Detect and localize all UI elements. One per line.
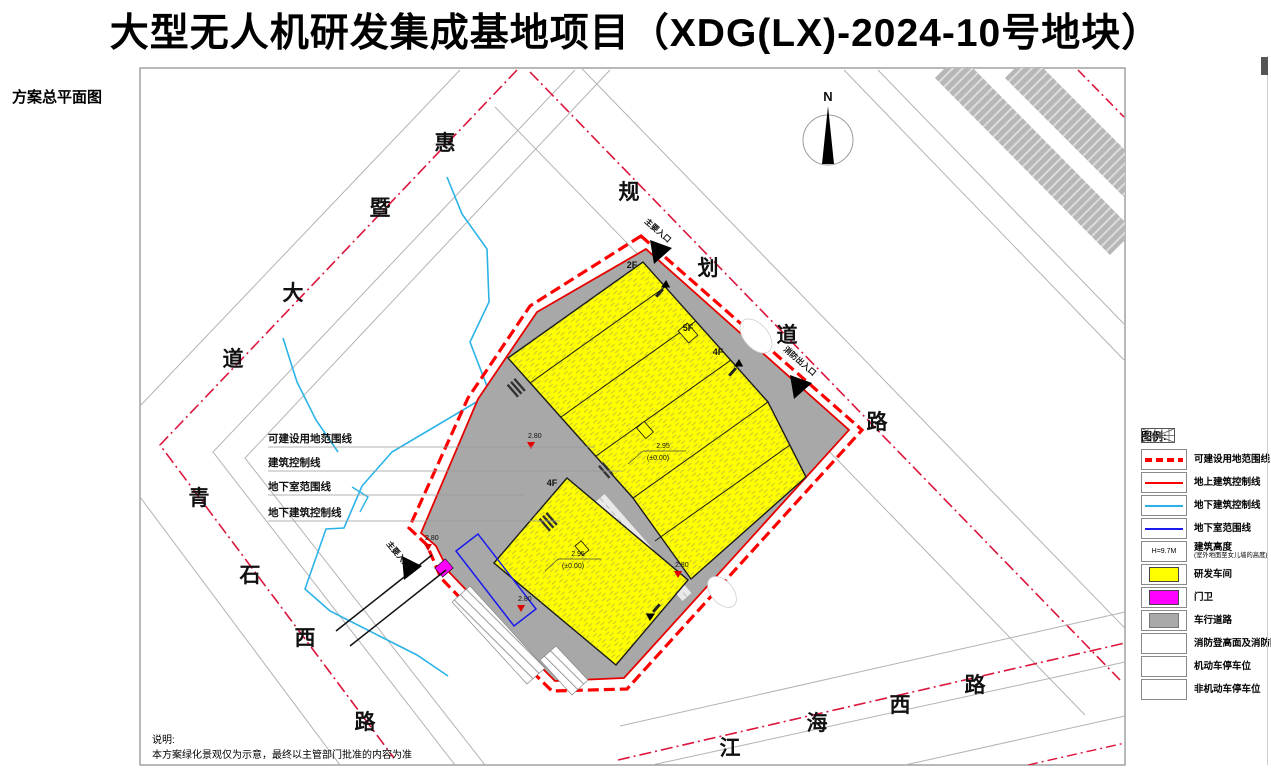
note-body: 本方案绿化景观仅为示意，最终以主管部门批准的内容为准: [152, 746, 412, 761]
svg-text:划: 划: [698, 257, 719, 280]
yellow-fill-symbol: [1149, 567, 1179, 582]
legend-item-buildable-boundary: 可建设用地范围线: [1141, 450, 1266, 469]
svg-text:江: 江: [720, 737, 741, 760]
svg-text:可建设用地范围线: 可建设用地范围线: [268, 432, 352, 445]
svg-text:惠: 惠: [435, 132, 456, 155]
svg-text:地下建筑控制线: 地下建筑控制线: [268, 506, 342, 519]
legend-item-vehicle-road: 车行道路: [1141, 611, 1266, 630]
svg-text:道: 道: [777, 323, 798, 347]
svg-text:2.80: 2.80: [518, 596, 532, 603]
gray-fill-symbol: [1149, 613, 1179, 628]
svg-text:青: 青: [189, 487, 210, 510]
svg-text:(±0.00): (±0.00): [647, 455, 669, 462]
blue-line-symbol: [1145, 528, 1183, 530]
red-dash-line-symbol: [1145, 458, 1183, 462]
site-plan-drawing: 惠 暨 大 道 规 划 道 路 青 石 西 路 江 海 西 路 可建设用地范围线…: [0, 0, 1271, 771]
svg-text:西: 西: [295, 627, 316, 650]
svg-text:5F: 5F: [683, 323, 694, 333]
page-edge-line: [1267, 56, 1268, 765]
svg-text:2.95: 2.95: [656, 443, 670, 450]
legend-item-building-height: H=9.7M 建筑高度 (室外地面至女儿墙的高度): [1141, 542, 1266, 561]
svg-text:2.80: 2.80: [675, 562, 689, 569]
cyan-line-symbol: [1145, 505, 1183, 507]
legend-item-fire-lane: 消防登高面及消防回车场: [1141, 634, 1266, 653]
svg-text:路: 路: [867, 410, 889, 434]
red-line-symbol: [1145, 482, 1183, 484]
svg-text:暨: 暨: [370, 197, 391, 220]
svg-text:建筑控制线: 建筑控制线: [267, 456, 321, 469]
svg-text:(±0.00): (±0.00): [562, 563, 584, 570]
svg-text:4F: 4F: [713, 347, 724, 357]
note-heading: 说明:: [152, 731, 175, 746]
svg-text:石: 石: [239, 564, 261, 587]
svg-text:西: 西: [890, 694, 911, 717]
svg-text:大: 大: [283, 282, 304, 305]
legend-item-car-parking: 机动车停车位: [1141, 657, 1266, 676]
legend-item-basement-extent: 地下室范围线: [1141, 519, 1266, 538]
svg-text:路: 路: [355, 710, 377, 734]
svg-text:2F: 2F: [627, 260, 638, 270]
svg-text:2.95: 2.95: [571, 551, 585, 558]
magenta-fill-symbol: [1149, 590, 1179, 605]
grid-box-symbol: [1141, 428, 1175, 443]
legend-item-above-ground-control: 地上建筑控制线: [1141, 473, 1266, 492]
svg-text:地下室范围线: 地下室范围线: [268, 480, 331, 493]
svg-text:2.80: 2.80: [528, 433, 542, 440]
legend-item-workshop: 研发车间: [1141, 565, 1266, 584]
page-edge-mark: [1261, 57, 1268, 75]
svg-text:道: 道: [223, 347, 244, 371]
legend-item-bike-parking: 非机动车停车位: [1141, 680, 1266, 699]
svg-text:N: N: [823, 89, 832, 104]
svg-text:路: 路: [965, 673, 987, 697]
svg-text:海: 海: [807, 711, 828, 735]
height-value: H=9.7M: [1152, 548, 1177, 555]
site-plan-page: 大型无人机研发集成基地项目（XDG(LX)-2024-10号地块） 方案总平面图: [0, 0, 1271, 771]
svg-text:2.80: 2.80: [425, 535, 439, 542]
legend: 图例: 可建设用地范围线 地上建筑控制线 地下建筑控制线 地下室范围线 H=9.…: [1141, 428, 1266, 703]
legend-item-underground-control: 地下建筑控制线: [1141, 496, 1266, 515]
svg-text:4F: 4F: [547, 478, 558, 488]
svg-text:规: 规: [619, 181, 640, 204]
legend-item-gatehouse: 门卫: [1141, 588, 1266, 607]
